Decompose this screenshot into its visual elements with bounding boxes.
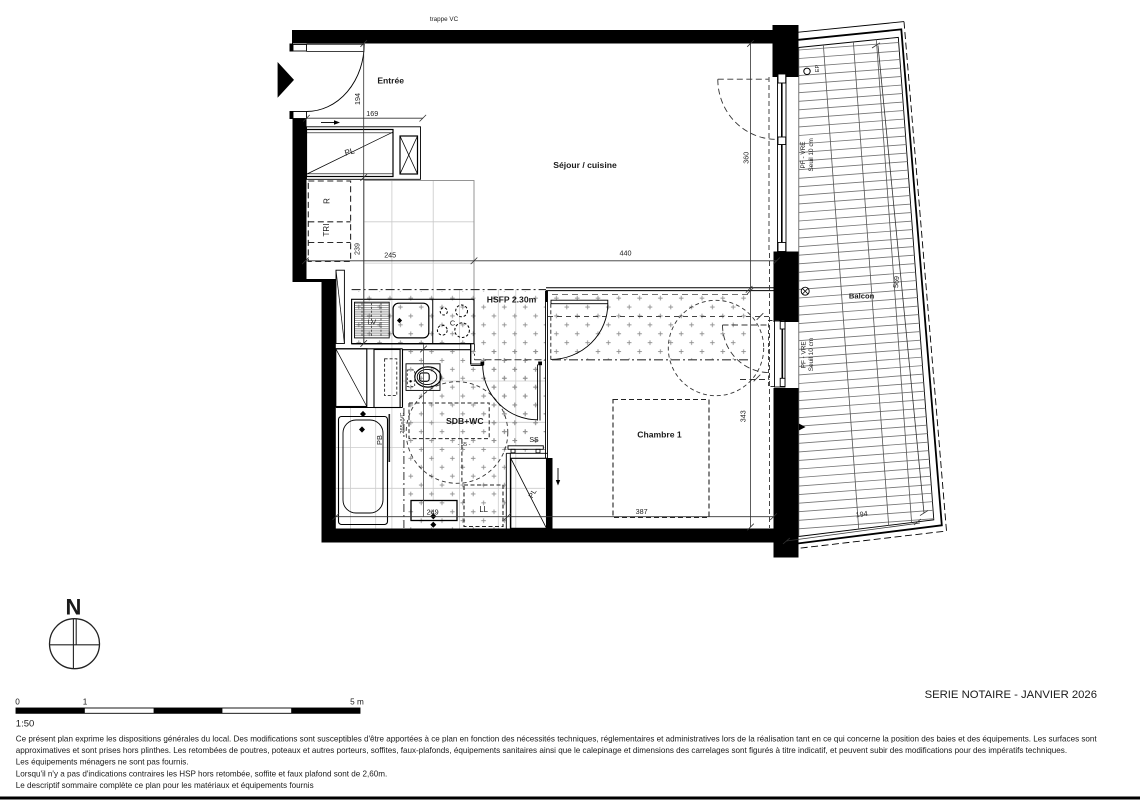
- svg-text:387: 387: [636, 507, 648, 516]
- svg-text:Seuil 10 cm: Seuil 10 cm: [808, 338, 815, 371]
- svg-text:569: 569: [891, 276, 901, 289]
- svg-text:SS: SS: [529, 437, 539, 444]
- svg-text:245: 245: [384, 251, 396, 260]
- svg-text:0: 0: [15, 698, 20, 707]
- svg-text:C: C: [450, 318, 456, 327]
- svg-text:HSFP 2.30m: HSFP 2.30m: [487, 295, 537, 305]
- svg-text:trappe VC: trappe VC: [430, 16, 459, 23]
- svg-text:194: 194: [855, 509, 868, 520]
- svg-text:Balcon: Balcon: [849, 292, 875, 301]
- svg-text:PF - VRE: PF - VRE: [800, 141, 807, 168]
- svg-text:- 55 -: - 55 -: [458, 442, 471, 448]
- svg-text:approximatives et sont prises: approximatives et sont prises hors plint…: [16, 746, 1067, 755]
- svg-text:Ce présent plan exprime les di: Ce présent plan exprime les dispositions…: [16, 735, 1098, 744]
- svg-text:LV: LV: [368, 317, 377, 326]
- svg-text:LL: LL: [479, 505, 488, 514]
- svg-text:Seuil 10 cm: Seuil 10 cm: [808, 138, 815, 171]
- svg-text:Les équipements ménagers ne so: Les équipements ménagers ne sont pas fou…: [16, 758, 189, 767]
- svg-text:EP: EP: [815, 65, 821, 73]
- svg-text:SDB+WC: SDB+WC: [446, 416, 483, 426]
- svg-text:360: 360: [742, 152, 751, 164]
- svg-text:PB: PB: [375, 435, 384, 445]
- svg-text:440: 440: [620, 248, 632, 257]
- svg-text:343: 343: [739, 410, 748, 422]
- svg-text:5 m: 5 m: [350, 698, 364, 707]
- svg-text:N: N: [66, 595, 82, 620]
- svg-text:1: 1: [83, 698, 88, 707]
- svg-text:SERIE NOTAIRE - JANVIER 2026: SERIE NOTAIRE - JANVIER 2026: [925, 689, 1097, 701]
- svg-text:TRI: TRI: [322, 224, 331, 237]
- svg-text:Le descriptif sommaire complèt: Le descriptif sommaire complète ce plan …: [16, 781, 314, 790]
- svg-text:R: R: [323, 198, 332, 204]
- svg-text:PF - VRE: PF - VRE: [800, 341, 807, 368]
- svg-text:194: 194: [353, 93, 362, 105]
- svg-text:249: 249: [427, 507, 439, 516]
- svg-text:239: 239: [353, 243, 362, 255]
- svg-text:169: 169: [366, 109, 378, 118]
- svg-text:Séjour / cuisine: Séjour / cuisine: [553, 160, 617, 170]
- svg-text:Lorsqu'il n'y a pas d'indicati: Lorsqu'il n'y a pas d'indications contra…: [16, 769, 387, 778]
- svg-text:265x/VC: 265x/VC: [400, 412, 406, 433]
- svg-text:1:50: 1:50: [16, 719, 35, 730]
- svg-text:Entrée: Entrée: [377, 76, 404, 86]
- svg-text:Chambre 1: Chambre 1: [637, 430, 682, 440]
